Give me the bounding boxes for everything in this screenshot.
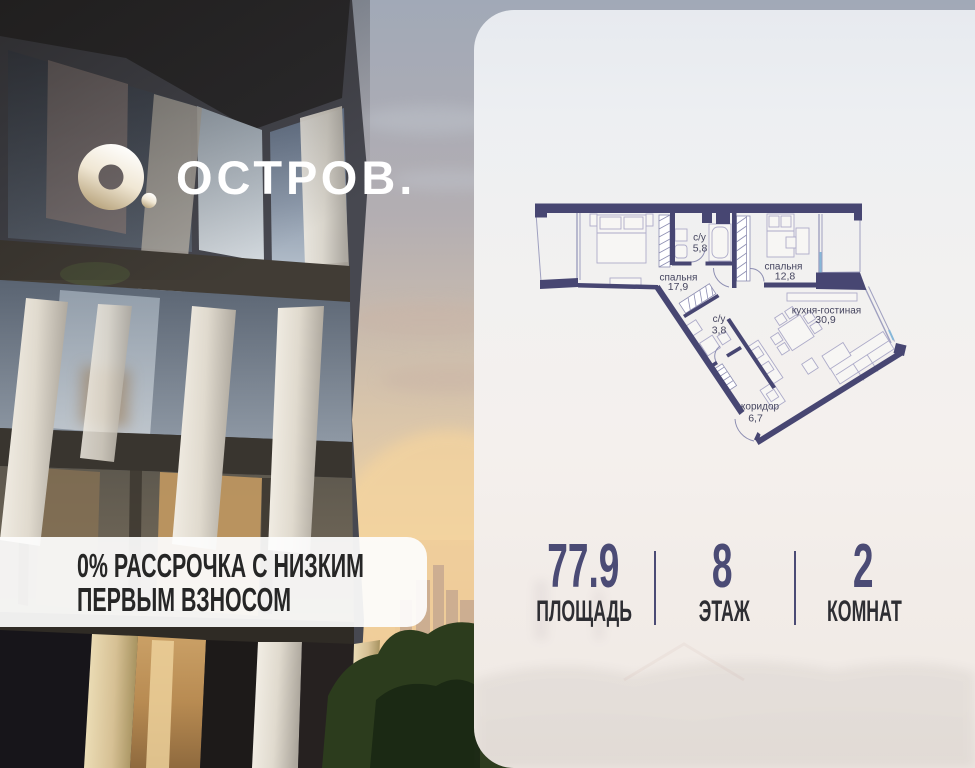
svg-text:17,9: 17,9 [668, 281, 689, 293]
svg-text:коридор: коридор [741, 402, 780, 413]
svg-text:30,9: 30,9 [815, 314, 836, 326]
svg-text:5,8: 5,8 [693, 243, 708, 255]
svg-text:12,8: 12,8 [775, 271, 796, 283]
svg-text:с/у: с/у [713, 314, 726, 325]
svg-text:3,8: 3,8 [712, 325, 727, 337]
svg-text:6,7: 6,7 [748, 413, 763, 425]
